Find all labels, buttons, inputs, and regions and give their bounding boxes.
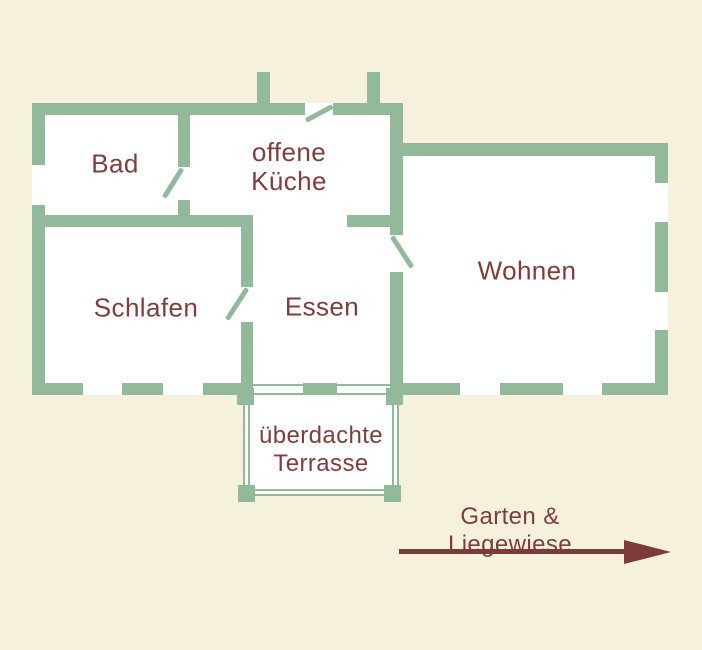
room-label-kueche: offene Küche — [251, 138, 327, 196]
window-bottom-living-2 — [563, 383, 602, 395]
chimney-left — [257, 72, 270, 105]
terrace-post-top-left — [237, 388, 254, 405]
room-label-bad: Bad — [91, 150, 138, 179]
room-label-terrasse: überdachte Terrasse — [259, 422, 383, 478]
exterior-wall-right-seg1 — [655, 143, 668, 183]
window-left-wall — [32, 165, 45, 205]
exterior-wall-bottom-seg4 — [403, 383, 460, 395]
window-bottom-bedroom-1 — [83, 383, 122, 395]
wall-bath-bedroom — [45, 215, 253, 227]
room-label-wohnen: Wohnen — [478, 257, 577, 286]
window-bottom-living-1 — [460, 383, 500, 395]
wall-bath-kitchen-stub — [178, 200, 190, 216]
exterior-wall-left-upper — [32, 103, 45, 165]
exterior-wall-bottom-seg2 — [122, 383, 163, 395]
exterior-wall-left-lower — [32, 205, 45, 395]
wall-kitchen-dining — [347, 215, 403, 227]
exterior-wall-living-top — [390, 143, 668, 156]
wall-bath-kitchen-upper — [178, 115, 190, 167]
garden-arrow-shaft — [399, 549, 629, 554]
house-left-section-fill — [32, 103, 403, 395]
terrace-post-bottom-left — [238, 485, 255, 502]
garden-arrow-head-icon — [624, 540, 671, 564]
chimney-right — [367, 72, 380, 105]
window-right-wall-lower — [655, 292, 668, 330]
wall-bedroom-dining-upper — [241, 227, 253, 287]
terrace-post-top-right — [386, 388, 403, 405]
terrace-post-bottom-right — [384, 485, 401, 502]
exterior-wall-bottom-seg6 — [602, 383, 668, 395]
wall-dining-living-lower — [390, 272, 403, 395]
room-label-essen: Essen — [285, 293, 359, 322]
exterior-wall-right-seg2 — [655, 222, 668, 292]
floorplan-canvas: Bad offene Küche Schlafen Essen Wohnen ü… — [0, 0, 702, 650]
exterior-wall-bottom-seg5 — [500, 383, 563, 395]
room-label-schlafen: Schlafen — [94, 294, 198, 323]
wall-bedroom-dining-lower — [241, 322, 253, 384]
window-bottom-bedroom-2 — [163, 383, 203, 395]
exterior-wall-bottom-seg1 — [32, 383, 83, 395]
window-right-wall-upper — [655, 183, 668, 222]
terrace-wall-pier — [303, 383, 337, 395]
